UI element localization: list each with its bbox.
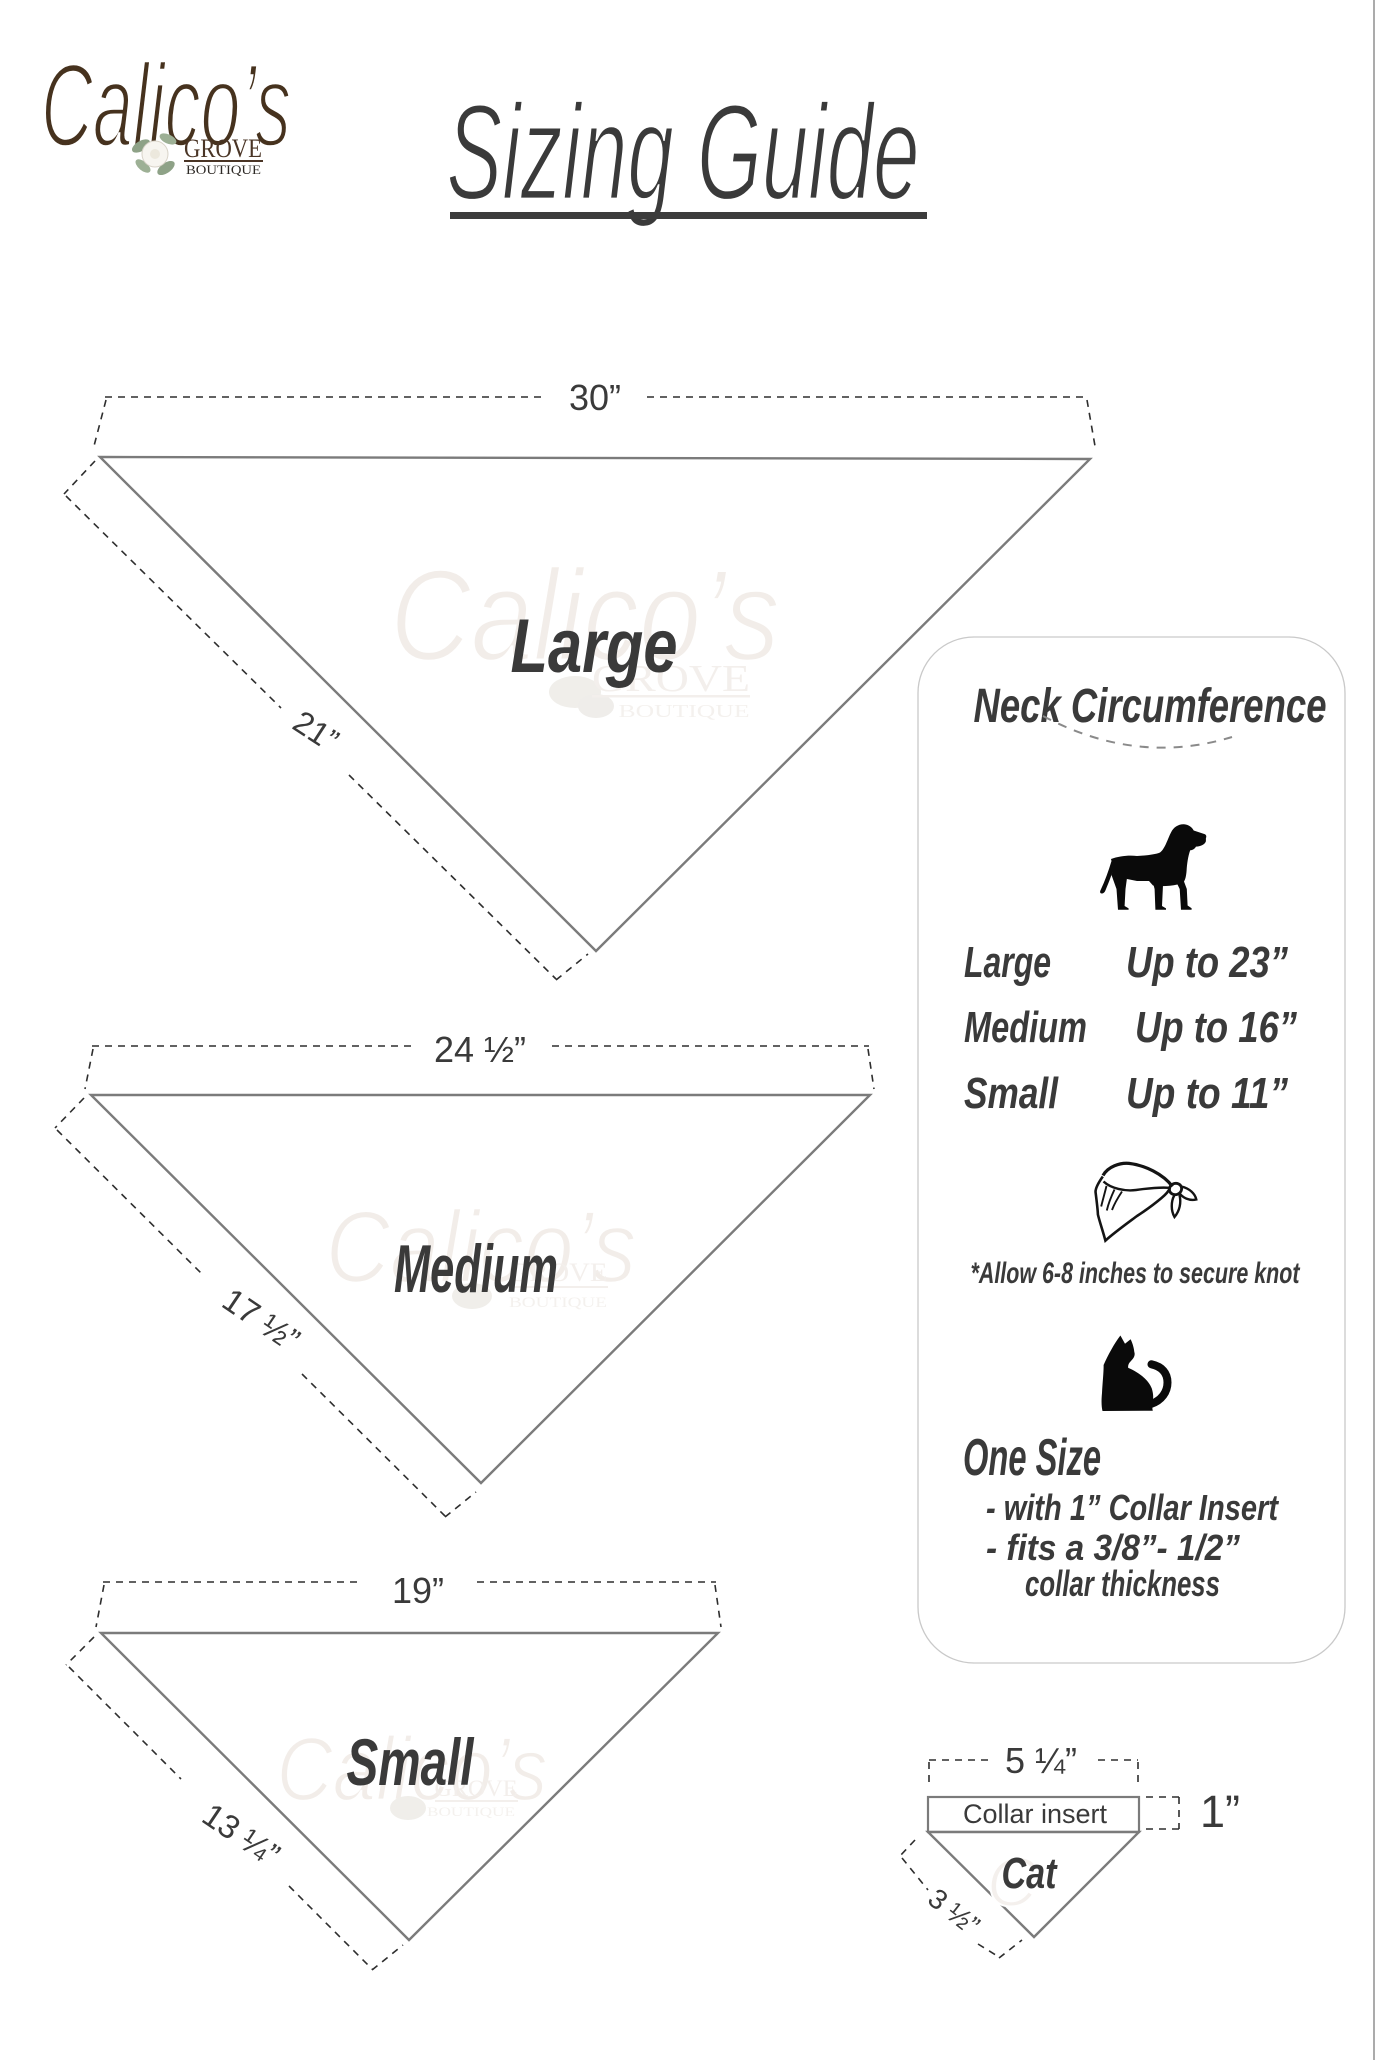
- svg-text:Medium: Medium: [964, 1003, 1087, 1052]
- svg-text:Collar insert: Collar insert: [963, 1799, 1108, 1829]
- svg-text:Small: Small: [347, 1725, 475, 1799]
- svg-text:Up to 11”: Up to 11”: [1126, 1069, 1288, 1118]
- svg-text:19”: 19”: [392, 1570, 444, 1611]
- svg-text:BOUTIQUE: BOUTIQUE: [186, 162, 261, 177]
- svg-text:Up to 23”: Up to 23”: [1126, 938, 1288, 987]
- svg-text:GROVE: GROVE: [184, 134, 262, 163]
- svg-text:collar thickness: collar thickness: [1025, 1563, 1220, 1604]
- svg-text:- with 1” Collar Insert: - with 1” Collar Insert: [986, 1487, 1280, 1528]
- svg-text:Small: Small: [964, 1069, 1059, 1118]
- svg-text:Up to 16”: Up to 16”: [1135, 1003, 1297, 1052]
- svg-text:30”: 30”: [569, 377, 621, 418]
- svg-text:Sizing Guide: Sizing Guide: [447, 76, 920, 228]
- svg-text:Cat: Cat: [1002, 1849, 1059, 1898]
- svg-text:Large: Large: [511, 604, 678, 689]
- svg-text:Large: Large: [964, 938, 1051, 987]
- svg-text:- fits a 3/8”- 1/2”: - fits a 3/8”- 1/2”: [986, 1527, 1240, 1568]
- svg-text:24 ½”: 24 ½”: [434, 1029, 526, 1070]
- svg-text:1”: 1”: [1200, 1786, 1240, 1837]
- svg-text:Medium: Medium: [394, 1231, 558, 1307]
- svg-text:BOUTIQUE: BOUTIQUE: [619, 701, 750, 721]
- svg-text:BOUTIQUE: BOUTIQUE: [427, 1804, 515, 1819]
- svg-text:5 ¼”: 5 ¼”: [1005, 1740, 1077, 1781]
- svg-text:*Allow 6-8 inches to secure kn: *Allow 6-8 inches to secure knot: [971, 1257, 1301, 1290]
- svg-text:Neck Circumference: Neck Circumference: [974, 680, 1327, 733]
- svg-text:One Size: One Size: [963, 1429, 1101, 1487]
